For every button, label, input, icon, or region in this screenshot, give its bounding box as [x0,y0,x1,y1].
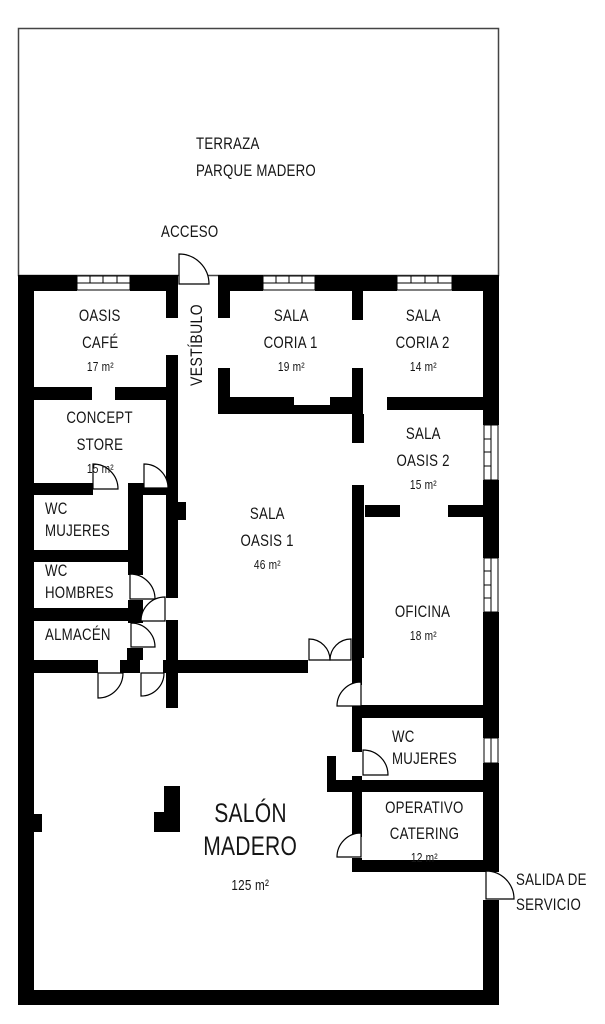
window-right-3 [484,738,498,763]
door-corridor-oasis1 [141,597,165,621]
floor-plan: TERRAZA PARQUE MADERO ACCESO VESTÍBULO O… [0,0,605,1024]
terraza-line2: PARQUE MADERO [196,157,316,184]
window-right-1 [484,425,498,480]
window-top-1 [77,276,130,290]
door-salon-right [141,673,164,696]
door-wc-mujeres-right [363,750,388,775]
acceso-label: ACCESO [161,218,235,245]
room-label-wc-mujeres-left: WC MUJERES [45,498,128,542]
door-almacen [131,623,155,647]
room-label-sala-oasis-2: SALA OASIS 2 15 m² [363,420,483,493]
room-label-wc-mujeres-right: WC MUJERES [392,726,475,770]
room-label-sala-oasis-1: SALA OASIS 1 46 m² [186,500,348,573]
door-acceso [179,254,209,284]
room-label-oficina: OFICINA 18 m² [363,598,483,644]
room-label-salon-madero: SALÓN MADERO 125 m² [148,797,353,902]
door-salida-servicio [486,871,514,899]
room-label-sala-coria-1: SALA CORIA 1 19 m² [230,302,352,375]
salida-servicio-label: SALIDA DE SERVICIO [516,867,605,917]
room-label-sala-coria-2: SALA CORIA 2 14 m² [363,302,483,375]
room-label-almacen: ALMACÉN [45,624,129,646]
door-oficina [337,682,361,706]
room-label-oasis-cafe: OASIS CAFÉ 17 m² [34,302,166,375]
window-right-2 [484,558,498,612]
room-label-operativo-catering: OPERATIVO CATERING 12 m² [360,795,488,866]
room-label-concept-store: CONCEPT STORE 15 m² [34,404,166,477]
window-top-2 [263,276,315,290]
door-double-right [330,639,351,660]
room-label-wc-hombres: WC HOMBRES [45,560,133,604]
door-salon-left [98,673,123,698]
door-wc-hombres [130,574,155,599]
door-double-left [309,639,330,660]
terraza-line1: TERRAZA [196,130,316,157]
window-top-3 [397,276,452,290]
terraza-label: TERRAZA PARQUE MADERO [196,130,350,184]
